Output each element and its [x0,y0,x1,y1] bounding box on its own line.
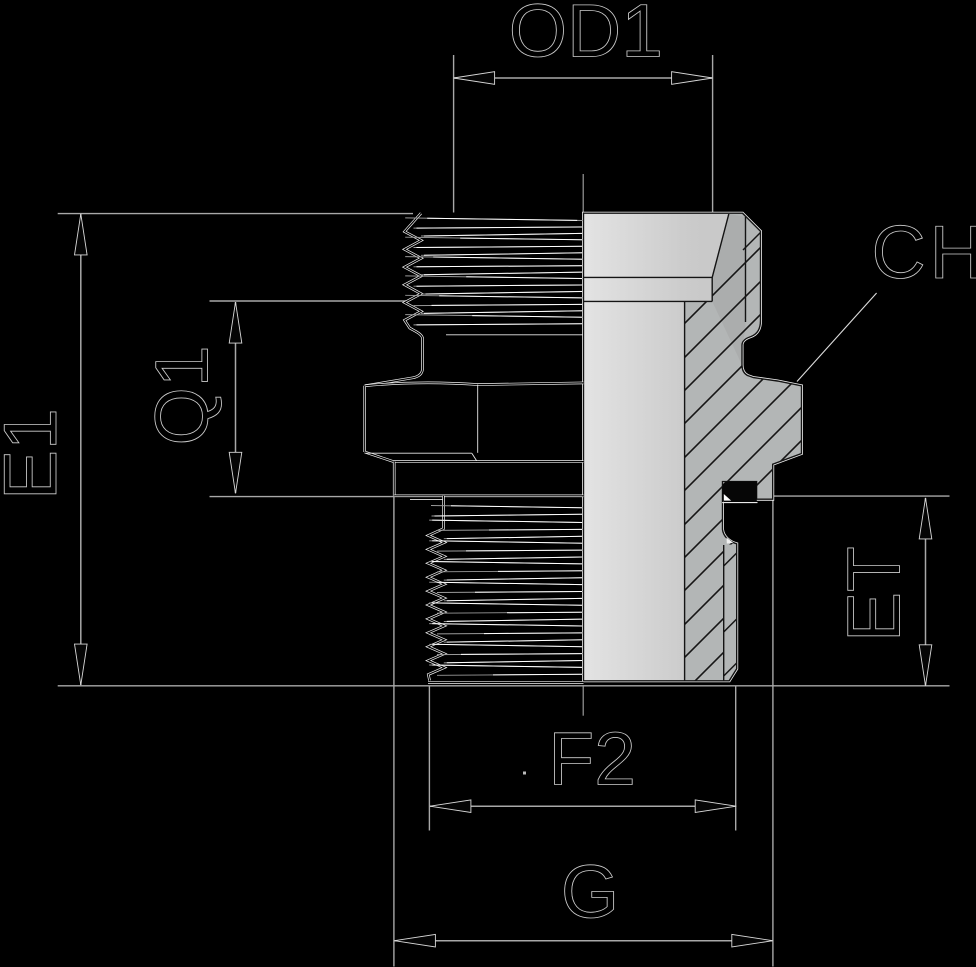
svg-text:CH: CH [872,210,976,294]
svg-text:G: G [561,850,619,934]
svg-text:F2: F2 [548,717,636,801]
svg-text:Q1: Q1 [140,345,224,445]
svg-text:OD1: OD1 [509,0,663,73]
svg-text:E1: E1 [0,408,72,500]
svg-text:ET: ET [832,546,916,642]
